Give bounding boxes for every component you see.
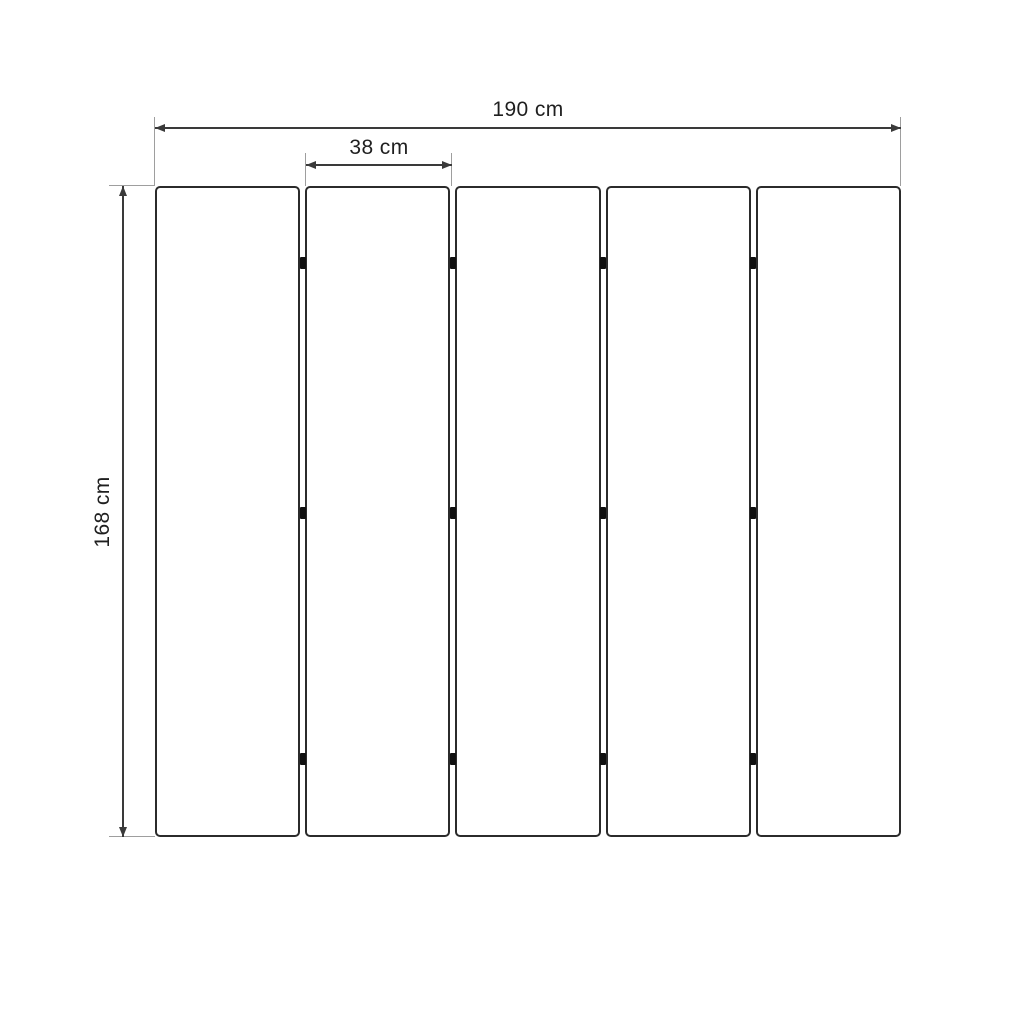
hinge-icon	[600, 257, 606, 269]
hinge-icon	[750, 257, 756, 269]
arrow-right-icon	[891, 124, 901, 132]
height-dimension-label: 168 cm	[90, 467, 116, 557]
hinge-icon	[450, 753, 456, 765]
hinge-icon	[300, 753, 306, 765]
hinge-icon	[450, 257, 456, 269]
panel-1	[155, 186, 300, 837]
height-extension-line-bottom	[109, 836, 155, 837]
arrow-left-icon	[306, 161, 316, 169]
hinge-icon	[750, 753, 756, 765]
height-dimension-label-wrap: 168 cm	[90, 467, 116, 557]
panel-4	[606, 186, 751, 837]
folding-screen-panels	[155, 186, 901, 837]
hinge-icon	[600, 507, 606, 519]
arrow-up-icon	[119, 186, 127, 196]
arrow-left-icon	[155, 124, 165, 132]
panel-3	[455, 186, 600, 837]
total-width-dimension-line	[155, 127, 901, 129]
arrow-right-icon	[442, 161, 452, 169]
panel-5	[756, 186, 901, 837]
panel-2	[305, 186, 450, 837]
height-dimension-line	[122, 186, 124, 837]
hinge-icon	[750, 507, 756, 519]
arrow-down-icon	[119, 827, 127, 837]
hinge-icon	[450, 507, 456, 519]
panel-width-dimension-label: 38 cm	[309, 135, 449, 161]
panel-width-extension-line-left	[305, 153, 306, 186]
height-extension-line-top	[109, 185, 155, 186]
hinge-icon	[600, 753, 606, 765]
panel-width-dimension-line	[306, 164, 452, 166]
panel-width-extension-line-right	[451, 153, 452, 186]
total-width-dimension-label: 190 cm	[428, 97, 628, 123]
dimension-drawing: 190 cm 38 cm 168 cm	[0, 0, 1024, 1024]
hinge-icon	[300, 507, 306, 519]
hinge-icon	[300, 257, 306, 269]
